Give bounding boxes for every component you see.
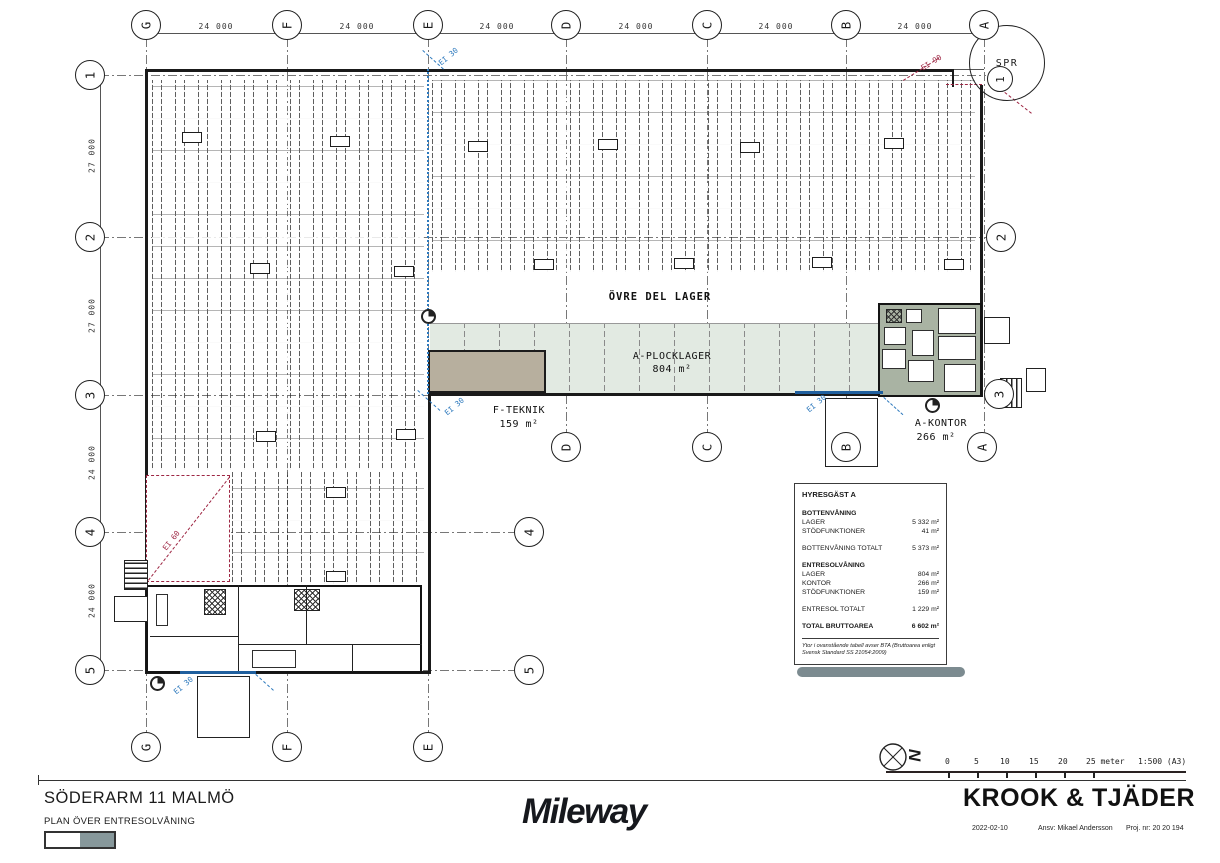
office-table [156,594,168,626]
north-label: N [904,749,924,761]
legend-swatch [44,831,116,849]
fire-label-ei30: EI 30 [172,675,195,696]
loading-dock [114,596,148,622]
grid-bubble-D-mid: D [551,432,581,462]
roof-hatch [396,429,416,440]
titleblock-divider [38,780,1186,781]
dim-label: 24 000 [754,22,798,31]
responsible-person: Ansv: Mikael Andersson [1038,825,1113,832]
roof-hatch [250,263,270,274]
scale-number: 0 [945,757,950,766]
roof-hatch [182,132,202,143]
grid-bubble-G-top: G [131,10,161,40]
table-row: BOTTENVÅNING [802,509,939,518]
office-stair-hatch [886,309,902,323]
drawing-date: 2022-02-10 [972,825,1008,832]
fire-diagonal-blue [255,674,274,691]
scale-number: 15 [1029,757,1039,766]
dimension-line-left [100,75,101,670]
scale-unit-label: 25 meter [1086,757,1125,766]
fire-wall-blue [795,391,883,394]
dim-label: 24 000 [88,441,97,485]
scale-tick [1006,772,1008,778]
spiral-stair-symbol [421,309,436,324]
interior-wall [150,636,238,637]
company-logo: Mileway [522,792,646,832]
area-table: HYRESGÄST A BOTTENVÅNING LAGER5 332 m² S… [794,483,947,665]
picking-area-label: 804 m² [612,364,732,375]
titleblock-tick [38,775,39,785]
grid-bubble-1-left: 1 [75,60,105,90]
racking-main-hall [432,80,975,272]
spiral-stair-symbol [925,398,940,413]
roof-hatch [330,136,350,147]
drawing-title: PLAN ÖVER ENTRESOLVÅNING [44,816,195,827]
architect-firm: KROOK & TJÄDER [963,784,1195,813]
scale-number: 10 [1000,757,1010,766]
grid-bubble-C-top: C [692,10,722,40]
scale-tick [1035,772,1037,778]
grid-bubble-3-left: 3 [75,380,105,410]
grid-bubble-1-right: 1 [987,66,1013,92]
drawing-sheet: 24 000 24 000 24 000 24 000 24 000 24 00… [0,0,1220,863]
grid-bubble-E-top: E [413,10,443,40]
legend-swatch-fill [80,833,114,847]
wall-right-wing [428,393,431,674]
table-row: STÖDFUNKTIONER41 m² [802,527,939,536]
grid-bubble-B-top: B [831,10,861,40]
roof-hatch [812,257,832,268]
table-row: ENTRESOLVÅNING [802,561,939,570]
table-row: LAGER5 332 m² [802,518,939,527]
tech-room-block [428,350,546,393]
grid-bubble-D-top: D [551,10,581,40]
grid-bubble-A-mid: A [967,432,997,462]
fire-label-ei30: EI 30 [437,46,460,67]
dim-label: 24 000 [335,22,379,31]
scale-ratio-label: 1:500 (A3) [1138,757,1186,766]
grid-bubble-2-left: 2 [75,222,105,252]
interior-wall [352,644,353,672]
grid-line-1 [100,75,986,76]
table-row-total: TOTAL BRUTTOAREA6 602 m² [802,622,939,631]
office-room [908,360,934,382]
scale-tick [977,772,979,778]
roof-hatch [598,139,618,150]
spiral-stair-symbol [150,676,165,691]
fire-wall-blue-line [427,69,429,394]
table-row: BOTTENVÅNING TOTALT5 373 m² [802,544,939,553]
office-stair-hatch [204,589,226,615]
fire-diagonal-blue [883,397,903,415]
table-row: STÖDFUNKTIONER159 m² [802,588,939,597]
office-room [252,650,296,668]
interior-wall [238,644,422,645]
scale-number: 20 [1058,757,1068,766]
table-row: KONTOR266 m² [802,579,939,588]
office-room [938,308,976,334]
dim-label: 27 000 [88,294,97,338]
office-name-label: A-KONTOR [881,418,1001,429]
project-title: SÖDERARM 11 MALMÖ [44,789,235,808]
grid-bubble-B-mid: B [831,432,861,462]
tech-area-label: 159 m² [459,419,579,430]
fire-wall-blue [180,671,256,674]
scale-tick [948,772,950,778]
dim-label: 24 000 [614,22,658,31]
grid-bubble-F-top: F [272,10,302,40]
project-number: Proj. nr: 20 20 194 [1126,825,1184,832]
office-room [882,349,906,369]
interior-wall [238,585,239,672]
roof-hatch [944,259,964,270]
picking-name-label: A-PLOCKLAGER [612,351,732,362]
exterior-shaft [1026,368,1046,392]
wall-top [146,69,954,72]
roof-hatch [326,487,346,498]
roof-hatch [884,138,904,149]
table-row: LAGER804 m² [802,570,939,579]
grid-bubble-C-mid: C [692,432,722,462]
grid-bubble-4-right: 4 [514,517,544,547]
grid-bubble-3-right: 3 [984,379,1014,409]
dim-label: 24 000 [194,22,238,31]
scale-tick [1064,772,1066,778]
table-row: ENTRESOL TOTALT1 229 m² [802,605,939,614]
roof-hatch [674,258,694,269]
dim-label: 24 000 [893,22,937,31]
office-room [944,364,976,392]
upper-storage-label: ÖVRE DEL LAGER [600,291,720,303]
office-room [938,336,976,360]
roof-hatch [534,259,554,270]
office-landing [984,317,1010,344]
interior-wall [306,585,307,645]
dim-label: 24 000 [88,579,97,623]
roof-hatch [468,141,488,152]
roof-hatch [394,266,414,277]
office-room [912,330,934,356]
tech-name-label: F-TEKNIK [459,405,579,416]
grid-bubble-A-top: A [969,10,999,40]
office-room [906,309,922,323]
grid-bubble-5-right: 5 [514,655,544,685]
grid-bubble-5-left: 5 [75,655,105,685]
area-table-title: HYRESGÄST A [802,490,939,499]
roof-hatch [256,431,276,442]
roof-hatch [326,571,346,582]
grid-bubble-2-right: 2 [986,222,1016,252]
scale-number: 5 [974,757,979,766]
dim-label: 27 000 [88,134,97,178]
office-room [884,327,906,345]
grid-bubble-F-bottom: F [272,732,302,762]
scale-tick [1093,772,1095,778]
exterior-stair [124,560,148,590]
roof-hatch [740,142,760,153]
grid-bubble-4-left: 4 [75,517,105,547]
grid-line-A [984,38,985,432]
grid-bubble-G-bottom: G [131,732,161,762]
grid-bubble-E-bottom: E [413,732,443,762]
area-table-footnote: Ytor i ovanstående tabell avser BTA (Bru… [802,638,939,657]
canopy-below [197,676,250,738]
dim-label: 24 000 [475,22,519,31]
table-footer-bar [797,667,965,677]
